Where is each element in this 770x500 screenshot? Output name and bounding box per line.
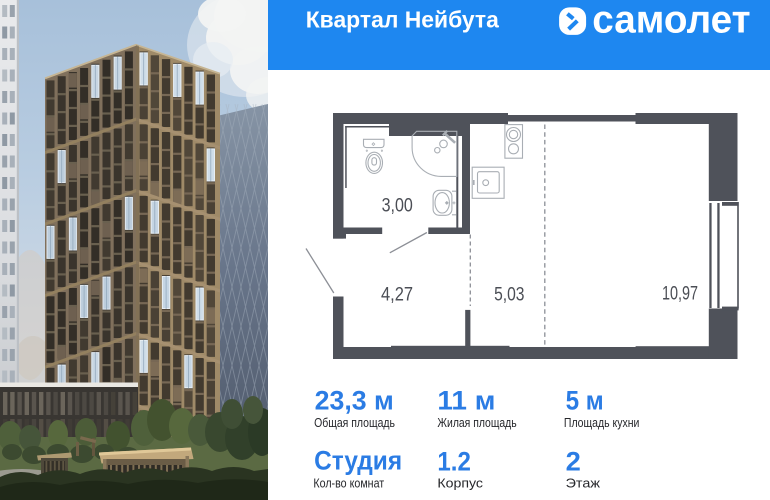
- svg-text:Этаж: Этаж: [566, 476, 601, 491]
- svg-text:Площадь кухни: Площадь кухни: [564, 415, 640, 430]
- svg-text:10,97: 10,97: [662, 284, 698, 305]
- svg-text:23,3 м: 23,3 м: [315, 385, 394, 415]
- svg-text:самолет: самолет: [592, 0, 750, 41]
- svg-text:1.2: 1.2: [437, 446, 471, 476]
- svg-text:4,27: 4,27: [381, 285, 413, 306]
- svg-text:Общая площадь: Общая площадь: [314, 415, 395, 430]
- svg-text:Кол-во комнат: Кол-во комнат: [313, 476, 384, 491]
- svg-text:Жилая площадь: Жилая площадь: [437, 415, 516, 430]
- svg-text:Студия: Студия: [314, 446, 402, 476]
- svg-text:Корпус: Корпус: [437, 476, 483, 491]
- svg-text:5,03: 5,03: [494, 285, 524, 306]
- svg-text:11 м: 11 м: [437, 385, 495, 415]
- svg-text:5 м: 5 м: [566, 385, 604, 415]
- svg-text:2: 2: [566, 446, 581, 476]
- svg-text:Квартал Нейбута: Квартал Нейбута: [306, 7, 500, 33]
- svg-text:3,00: 3,00: [382, 196, 413, 217]
